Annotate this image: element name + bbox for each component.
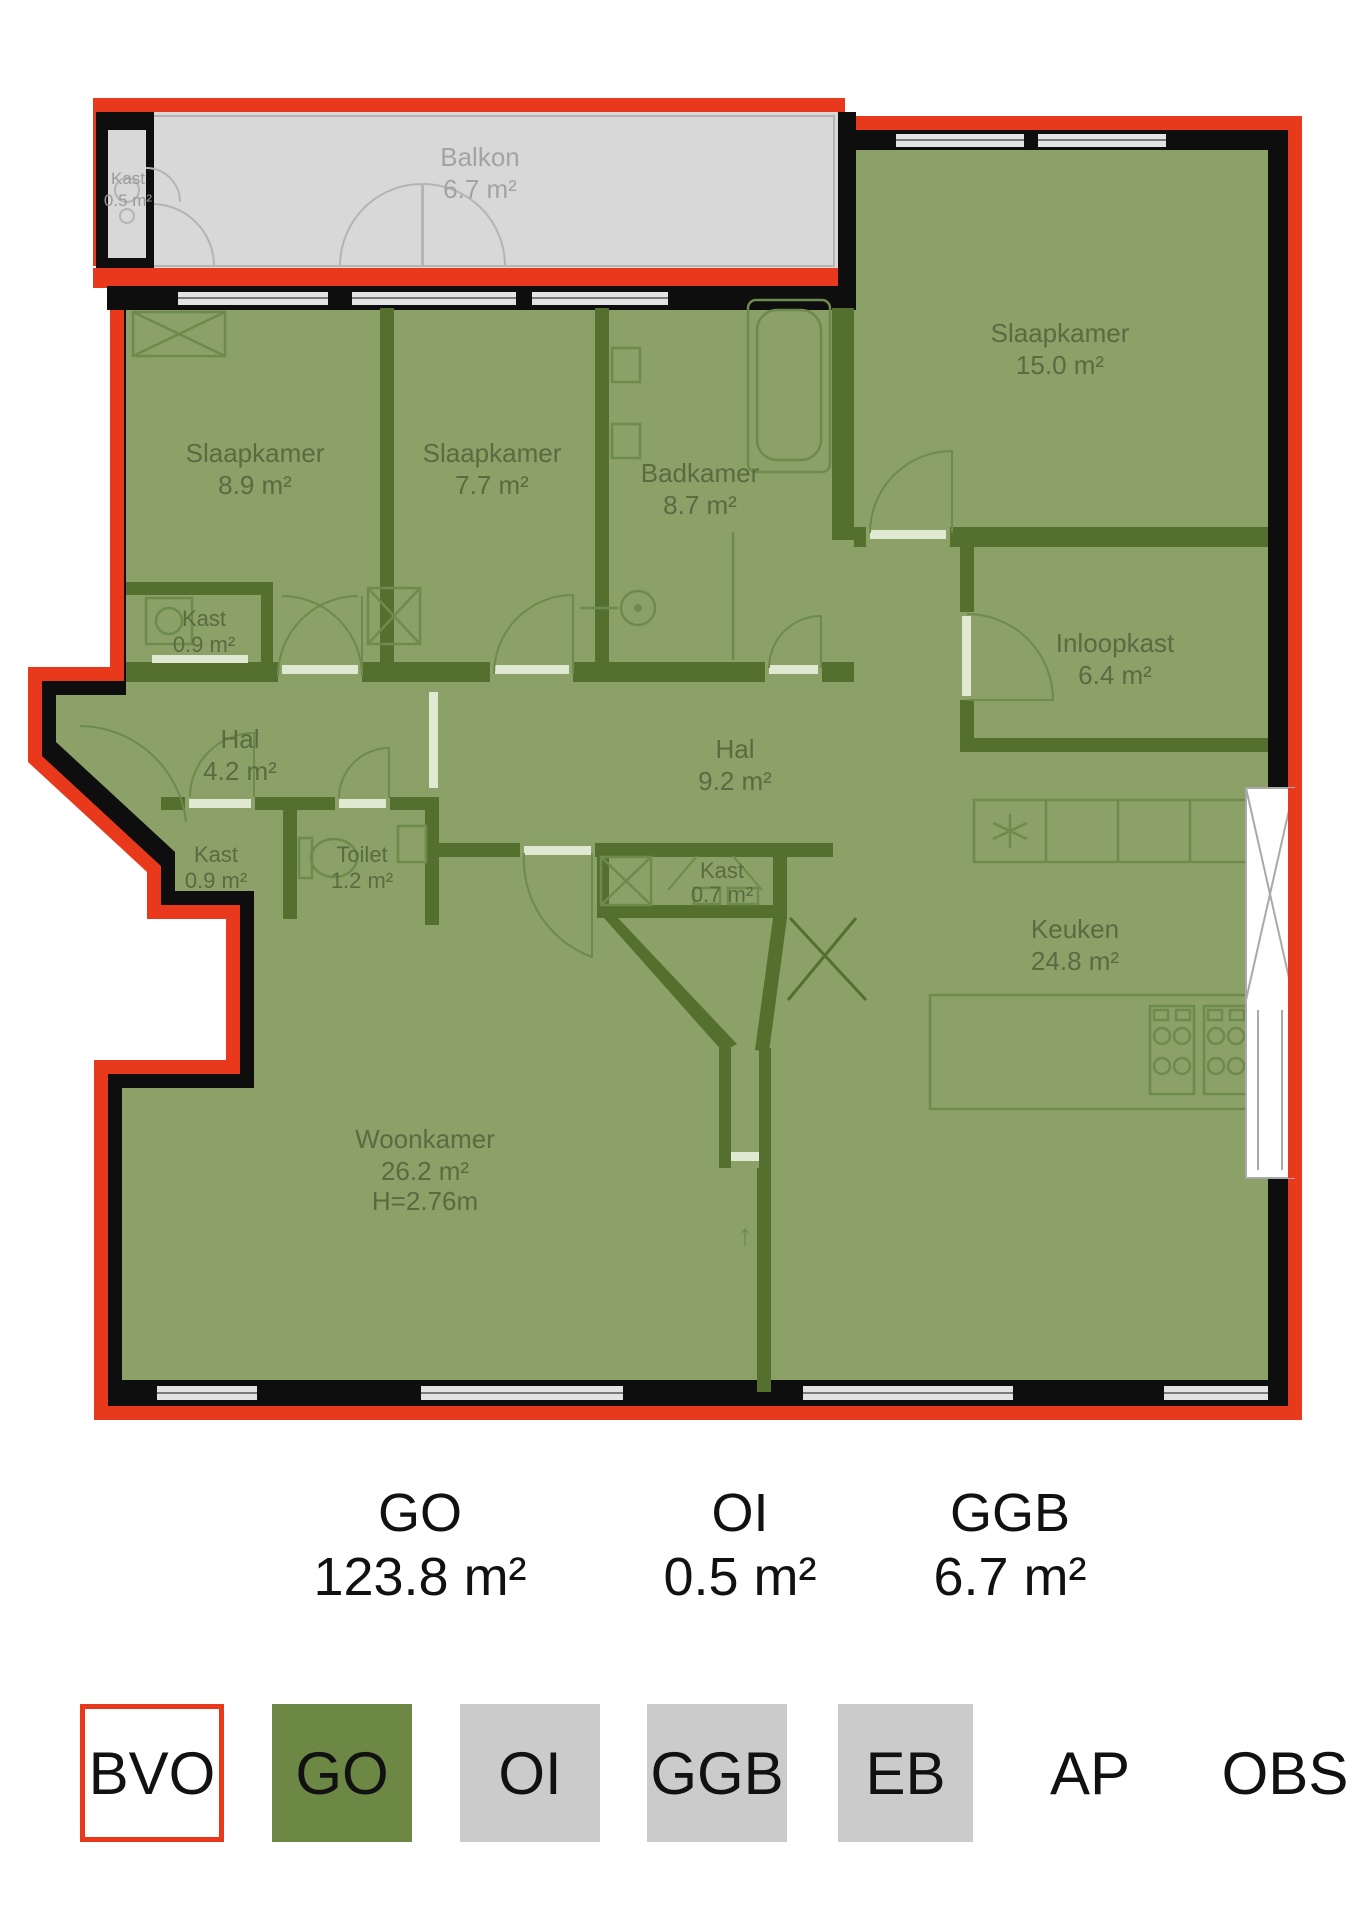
svg-text:Badkamer: Badkamer [641, 458, 760, 488]
svg-text:1.2 m²: 1.2 m² [331, 868, 393, 893]
svg-text:Kast: Kast [182, 606, 226, 631]
svg-text:Slaapkamer: Slaapkamer [423, 438, 562, 468]
svg-text:Kast: Kast [700, 858, 744, 883]
room-label-kast-3: Kast 0.7 m² [691, 858, 753, 907]
svg-text:Slaapkamer: Slaapkamer [186, 438, 325, 468]
legend-label-eb: EB [865, 1739, 945, 1808]
svg-text:Hal: Hal [715, 734, 754, 764]
svg-text:8.7 m²: 8.7 m² [663, 490, 737, 520]
go-area-bedroom15 [856, 150, 1268, 308]
stat-ggb-value: 6.7 m² [840, 1544, 1180, 1610]
svg-text:Slaapkamer: Slaapkamer [991, 318, 1130, 348]
room-label-kast-2: Kast 0.9 m² [185, 842, 247, 893]
bvo-balcony-line [93, 268, 853, 288]
room-label-kast-1: Kast 0.9 m² [173, 606, 235, 657]
svg-text:0.9 m²: 0.9 m² [185, 868, 247, 893]
room-label-toilet: Toilet 1.2 m² [331, 842, 393, 893]
stat-go: GO 123.8 m² [250, 1482, 590, 1610]
stat-go-value: 123.8 m² [250, 1544, 590, 1610]
legend-item-oi: OI [460, 1704, 600, 1842]
legend-item-ggb: GGB [647, 1704, 787, 1842]
svg-text:Keuken: Keuken [1031, 914, 1119, 944]
floorplan-page: ↑ Kast 0.5 m² Balkon 6.7 m² Slaapkamer 8… [0, 0, 1358, 1920]
legend-item-obs: OBS [1215, 1704, 1355, 1842]
legend-item-ap: AP [1020, 1704, 1160, 1842]
svg-text:6.7 m²: 6.7 m² [443, 174, 517, 204]
svg-text:Hal: Hal [220, 724, 259, 754]
stat-ggb-label: GGB [840, 1482, 1180, 1544]
legend-label-ap: AP [1050, 1739, 1130, 1808]
entry-arrow-icon: ↑ [738, 1219, 753, 1252]
svg-text:7.7 m²: 7.7 m² [455, 470, 529, 500]
svg-text:26.2 m²: 26.2 m² [381, 1156, 469, 1186]
floorplan-drawing: ↑ Kast 0.5 m² Balkon 6.7 m² Slaapkamer 8… [0, 0, 1358, 1460]
svg-text:9.2 m²: 9.2 m² [698, 766, 772, 796]
svg-text:0.9 m²: 0.9 m² [173, 632, 235, 657]
svg-text:8.9 m²: 8.9 m² [218, 470, 292, 500]
stat-ggb: GGB 6.7 m² [840, 1482, 1180, 1610]
svg-text:24.8 m²: 24.8 m² [1031, 946, 1119, 976]
legend-item-go: GO [272, 1704, 412, 1842]
legend-label-ggb: GGB [650, 1739, 783, 1808]
svg-text:Balkon: Balkon [440, 142, 520, 172]
window [178, 292, 668, 305]
svg-text:15.0 m²: 15.0 m² [1016, 350, 1104, 380]
elevator-shaft [1246, 788, 1302, 1178]
svg-text:H=2.76m: H=2.76m [372, 1186, 478, 1216]
svg-text:4.2 m²: 4.2 m² [203, 756, 277, 786]
svg-text:Inloopkast: Inloopkast [1056, 628, 1175, 658]
svg-text:0.7 m²: 0.7 m² [691, 882, 753, 907]
svg-text:Kast: Kast [111, 169, 145, 188]
balcony-end-wall [838, 112, 856, 310]
svg-text:0.5 m²: 0.5 m² [104, 191, 153, 210]
svg-text:Kast: Kast [194, 842, 238, 867]
legend-label-oi: OI [498, 1739, 561, 1808]
stat-go-label: GO [250, 1482, 590, 1544]
svg-text:Toilet: Toilet [336, 842, 387, 867]
svg-text:6.4 m²: 6.4 m² [1078, 660, 1152, 690]
legend-label-obs: OBS [1222, 1739, 1349, 1808]
legend-label-bvo: BVO [89, 1739, 216, 1808]
legend-item-bvo: BVO [80, 1704, 224, 1842]
legend-item-eb: EB [838, 1704, 973, 1842]
svg-text:Woonkamer: Woonkamer [355, 1124, 495, 1154]
legend-label-go: GO [295, 1739, 388, 1808]
